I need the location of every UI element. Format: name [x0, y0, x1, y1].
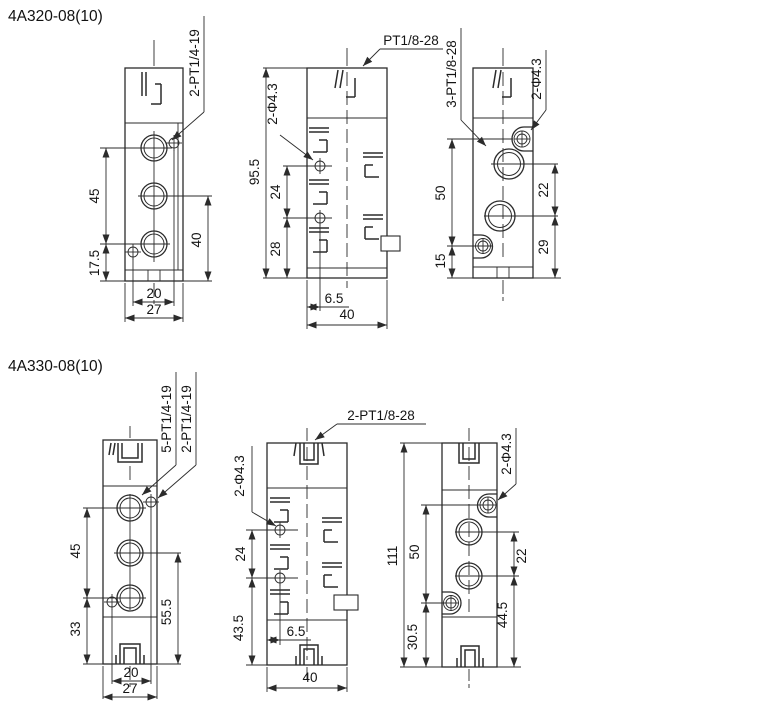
label-2-phi4-3: 2-Φ4.3: [499, 433, 514, 475]
label-2-pt14-19: 2-PT1/4-19: [187, 29, 202, 97]
dim-40: 40: [339, 307, 354, 322]
dim-50: 50: [433, 185, 448, 200]
dim-6-5: 6.5: [287, 624, 306, 639]
dim-33: 33: [68, 621, 83, 636]
dim-20: 20: [123, 665, 138, 680]
side-connector-tab: [334, 595, 358, 610]
dim-28: 28: [268, 241, 283, 256]
pilot-symbol: [142, 72, 161, 104]
mounting-hole: [166, 135, 182, 151]
dim-27: 27: [146, 302, 161, 317]
dim-30-5: 30.5: [405, 624, 420, 650]
drawing-title-4a330: 4A330-08(10): [8, 358, 103, 375]
side-connector-tab: [381, 236, 400, 251]
dim-111: 111: [385, 546, 400, 567]
pilot-cap-symbol: [109, 443, 142, 462]
dim-24: 24: [268, 184, 283, 200]
dim-55-5: 55.5: [159, 599, 174, 625]
technical-drawing-page: 4A320-08(10): [0, 0, 760, 706]
extension-lines: [447, 139, 561, 278]
dim-15: 15: [433, 253, 448, 268]
dim-20: 20: [146, 286, 161, 301]
port-callout: 5-PT1/4-19: [142, 372, 176, 495]
extension-lines: [246, 530, 347, 692]
pilot-cap-symbol: [294, 443, 324, 464]
port-callout: 2-PT1/4-19: [172, 16, 204, 140]
label-2-pt14-19: 2-PT1/4-19: [179, 385, 194, 453]
view-4a320-side-right: 50 15 22 29 3-PT1/8-28 2-Φ4.3: [433, 28, 561, 301]
port-callout: 2-PT1/8-28: [315, 408, 426, 440]
label-2-pt18-28: 2-PT1/8-28: [347, 408, 415, 423]
dim-95-5: 95.5: [247, 159, 262, 185]
dim-40: 40: [189, 232, 204, 247]
label-3-pt18-28: 3-PT1/8-28: [444, 40, 459, 108]
hole-callout: 2-Φ4.3: [265, 83, 313, 160]
view-4a330-side-right: 111 50 30.5 22 44.5 2-Φ4.3: [385, 428, 529, 688]
drawing-4a320: 4A320-08(10): [8, 8, 561, 329]
view-4a320-front: 95.5 24 28 6.5 40 PT1/8-28 2-Φ4.3: [247, 33, 443, 329]
port-callout: PT1/8-28: [363, 33, 443, 66]
body-lines: [442, 428, 497, 688]
label-2-phi4-3: 2-Φ4.3: [529, 58, 544, 100]
view-4a320-side-left: 45 17.5 40 20 27 2-PT1/4-19: [87, 16, 212, 322]
mounting-hole: [125, 244, 141, 260]
dim-44-5: 44.5: [495, 602, 510, 628]
pilot-cap-symbol-bottom: [116, 644, 144, 664]
dim-22: 22: [514, 548, 529, 563]
label-2-phi4-3: 2-Φ4.3: [265, 83, 280, 125]
label-pt18-28: PT1/8-28: [383, 33, 439, 48]
dim-24: 24: [233, 546, 248, 562]
dim-40: 40: [302, 670, 317, 685]
hole-callout: 2-Φ4.3: [498, 428, 516, 500]
thread-symbols: [270, 498, 342, 614]
dim-22: 22: [536, 182, 551, 197]
label-5-pt14-19: 5-PT1/4-19: [159, 385, 174, 453]
valve-body-outline: [442, 443, 497, 667]
label-2-phi4-3: 2-Φ4.3: [232, 455, 247, 497]
dim-29: 29: [536, 239, 551, 254]
drawing-title-4a320: 4A320-08(10): [8, 8, 103, 25]
drawing-4a330: 4A330-08(10): [8, 358, 529, 699]
dim-43-5: 43.5: [231, 615, 246, 641]
pilot-cap-symbol-bottom: [296, 645, 322, 665]
dim-27: 27: [122, 681, 137, 696]
pilot-cap-symbol-bottom: [457, 646, 483, 667]
view-4a330-side-left: 45 33 55.5 20 27 5-PT1/4-19 2-PT1/4-19: [68, 372, 196, 699]
dim-50: 50: [407, 544, 422, 559]
dim-45: 45: [87, 188, 102, 203]
dim-6-5: 6.5: [325, 291, 344, 306]
pilot-symbol: [335, 70, 355, 97]
dim-17-5: 17.5: [87, 250, 102, 276]
port-callout: 3-PT1/8-28: [444, 28, 486, 146]
dim-45: 45: [68, 543, 83, 558]
valve-dimension-drawing: 4A320-08(10): [0, 0, 760, 706]
pilot-symbol: [493, 70, 511, 97]
hole-callout: 2-Φ4.3: [232, 446, 276, 526]
